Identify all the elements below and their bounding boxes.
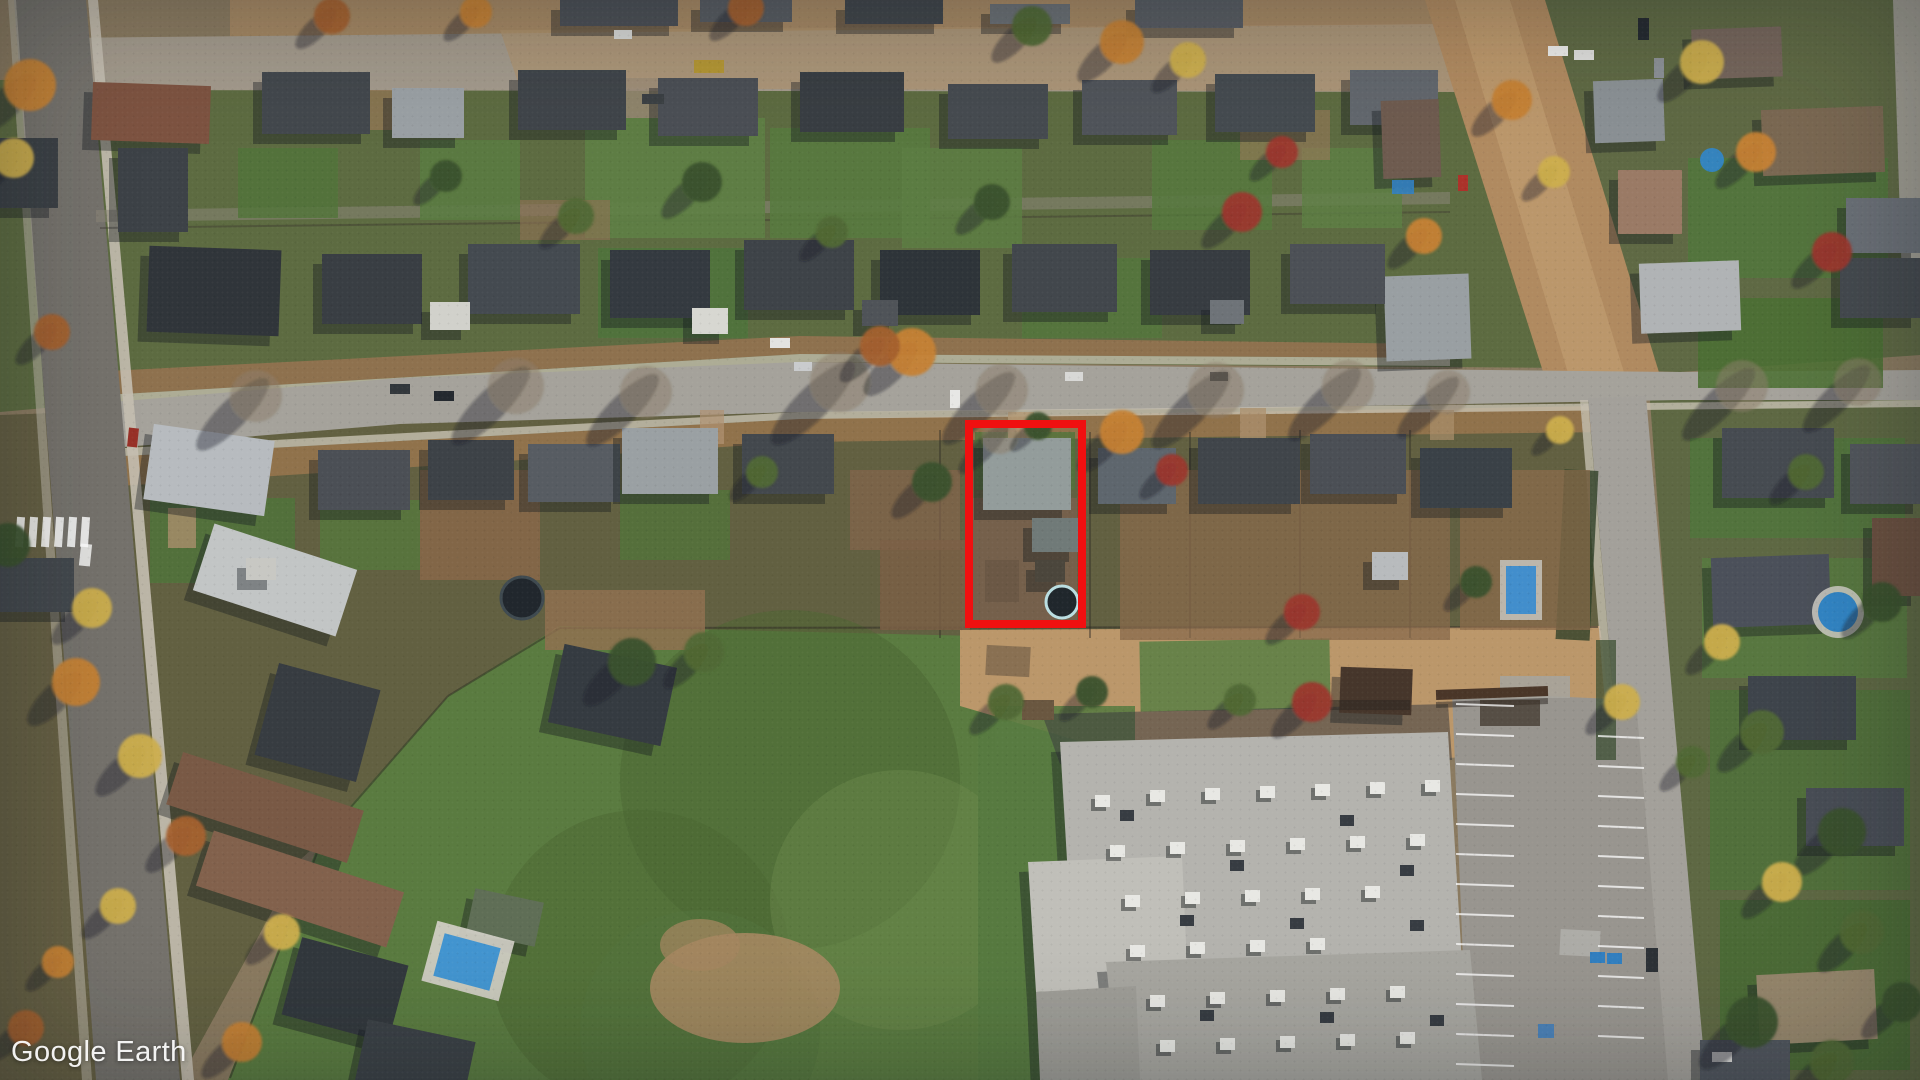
car — [770, 338, 790, 348]
tree — [1284, 594, 1320, 630]
tree — [1736, 132, 1776, 172]
lawn — [238, 148, 338, 218]
house — [1761, 106, 1885, 176]
house — [1135, 0, 1243, 28]
rooftop-unit — [1205, 788, 1220, 800]
rooftop-vent — [1400, 865, 1414, 876]
tree — [264, 914, 300, 950]
rooftop-unit — [1315, 784, 1330, 796]
house — [1850, 444, 1920, 504]
house — [1639, 260, 1741, 333]
tree — [1762, 862, 1802, 902]
rooftop-vent — [1230, 860, 1244, 871]
tree — [974, 184, 1010, 220]
house — [560, 0, 678, 26]
rooftop-vent — [1410, 920, 1424, 931]
tree — [1292, 682, 1332, 722]
tree — [1862, 582, 1902, 622]
house — [1310, 434, 1406, 494]
shed — [1372, 552, 1408, 580]
rooftop-unit — [1210, 992, 1225, 1004]
house — [528, 444, 620, 502]
tree — [100, 888, 136, 924]
house — [1384, 274, 1472, 362]
rooftop-unit — [1130, 945, 1145, 957]
rooftop-unit — [1290, 838, 1305, 850]
house — [468, 244, 580, 314]
house — [1846, 198, 1920, 253]
satellite-canvas — [0, 0, 1920, 1080]
car — [127, 428, 139, 448]
parking-lot — [1452, 692, 1668, 1080]
rooftop-vent — [1430, 1015, 1444, 1026]
tree — [166, 816, 206, 856]
house — [318, 450, 410, 510]
tree — [1538, 156, 1570, 188]
rooftop-vent — [1200, 1010, 1214, 1021]
rooftop-unit — [1150, 790, 1165, 802]
shed — [246, 558, 276, 580]
house — [658, 78, 758, 136]
car — [1548, 46, 1568, 56]
car — [390, 384, 410, 394]
tree — [1834, 358, 1882, 406]
tree — [34, 314, 70, 350]
tree — [1788, 454, 1824, 490]
recycle-bin — [1590, 952, 1605, 963]
rooftop-unit — [1270, 990, 1285, 1002]
house — [744, 240, 854, 310]
shed — [1210, 300, 1244, 324]
rooftop-unit — [1190, 942, 1205, 954]
property-highlight-box — [965, 420, 1086, 628]
tree — [1492, 80, 1532, 120]
tree — [1604, 684, 1640, 720]
rooftop-unit — [1245, 890, 1260, 902]
house — [518, 70, 626, 130]
rooftop-vent — [1340, 815, 1354, 826]
tree — [1188, 362, 1244, 418]
play-structure-shadow — [1330, 700, 1410, 710]
rooftop-vent — [1320, 1012, 1334, 1023]
rooftop-unit — [1400, 1032, 1415, 1044]
house — [1290, 244, 1385, 304]
tree — [860, 326, 900, 366]
tree — [1676, 746, 1708, 778]
pool-tarp — [1392, 180, 1414, 194]
rooftop-unit — [1310, 938, 1325, 950]
tree — [1726, 996, 1778, 1048]
dark-pool — [501, 577, 543, 619]
tree — [4, 59, 56, 111]
car — [614, 30, 632, 39]
recycle-bin — [1607, 953, 1622, 964]
tree — [1100, 20, 1144, 64]
field-worn-patch — [660, 919, 740, 971]
shed — [692, 308, 728, 334]
rooftop-unit — [1095, 795, 1110, 807]
driveway — [1240, 408, 1266, 438]
rooftop-unit — [1330, 988, 1345, 1000]
tree — [430, 160, 462, 192]
car — [1638, 18, 1649, 40]
shed — [862, 300, 898, 326]
rooftop-unit — [1150, 995, 1165, 1007]
tree — [1812, 232, 1852, 272]
car — [1458, 175, 1468, 191]
tree — [620, 366, 672, 418]
house — [91, 82, 211, 144]
tree — [1322, 360, 1374, 412]
tree — [1818, 808, 1866, 856]
rooftop-unit — [1305, 888, 1320, 900]
car — [1654, 58, 1664, 78]
house — [1593, 79, 1665, 143]
tree — [1704, 624, 1740, 660]
tree — [1716, 360, 1768, 412]
house — [845, 0, 943, 24]
tree — [230, 370, 282, 422]
house — [1198, 438, 1300, 504]
rooftop-unit — [1365, 886, 1380, 898]
tree — [746, 456, 778, 488]
rooftop-unit — [1370, 782, 1385, 794]
car — [642, 94, 664, 104]
tree — [608, 638, 656, 686]
rooftop-unit — [1350, 836, 1365, 848]
play-structure — [1480, 700, 1540, 726]
house — [118, 148, 188, 232]
tree — [1266, 136, 1298, 168]
rooftop-unit — [1110, 845, 1125, 857]
play-structure — [1022, 700, 1054, 720]
rooftop-vent — [1180, 915, 1194, 926]
tree — [488, 358, 544, 414]
rooftop-unit — [1220, 1038, 1235, 1050]
car — [1646, 948, 1658, 972]
school-roof-south — [1106, 950, 1482, 1080]
pool-round — [1700, 148, 1724, 172]
house — [622, 428, 718, 494]
house — [322, 254, 422, 324]
house — [428, 440, 514, 500]
tree — [816, 216, 848, 248]
house — [1420, 448, 1512, 508]
tree — [42, 946, 74, 978]
rooftop-unit — [1125, 895, 1140, 907]
rooftop-vent — [1290, 918, 1304, 929]
tree — [1012, 6, 1052, 46]
play-structure — [985, 645, 1031, 677]
tree — [1224, 684, 1256, 716]
rooftop-unit — [1340, 1034, 1355, 1046]
house — [1381, 99, 1442, 179]
car — [794, 362, 812, 371]
house — [1215, 74, 1315, 132]
house — [147, 246, 282, 337]
rooftop-unit — [1260, 786, 1275, 798]
rooftop-unit — [1230, 840, 1245, 852]
house — [262, 72, 370, 134]
shed — [430, 302, 470, 330]
car — [434, 391, 454, 401]
tree — [1546, 416, 1574, 444]
pool-rect — [1506, 566, 1536, 614]
dirt-yard — [880, 540, 970, 630]
tree — [1740, 710, 1784, 754]
rooftop-unit — [1410, 834, 1425, 846]
rooftop-unit — [1160, 1040, 1175, 1052]
rooftop-unit — [1185, 892, 1200, 904]
house — [1618, 170, 1682, 234]
rooftop-unit — [1250, 940, 1265, 952]
tree — [684, 632, 724, 672]
tree — [1222, 192, 1262, 232]
tree — [1170, 42, 1206, 78]
tree — [1076, 676, 1108, 708]
house — [948, 84, 1048, 139]
tree — [976, 364, 1028, 416]
tree — [222, 1022, 262, 1062]
rooftop-vent — [1120, 810, 1134, 821]
tree — [72, 588, 112, 628]
tree — [1426, 370, 1470, 414]
school-roof-sw — [1036, 986, 1140, 1080]
house — [800, 72, 904, 132]
tree — [1406, 218, 1442, 254]
excavator — [694, 60, 724, 73]
rooftop-unit — [1280, 1036, 1295, 1048]
rooftop-unit — [1425, 780, 1440, 792]
tree — [1680, 40, 1724, 84]
tree — [1840, 910, 1884, 954]
house — [1012, 244, 1117, 312]
tree — [912, 462, 952, 502]
tree — [52, 658, 100, 706]
google-earth-watermark: Google Earth — [11, 1036, 187, 1069]
tree — [988, 684, 1024, 720]
tree — [1460, 566, 1492, 598]
tree — [1100, 410, 1144, 454]
handicap-spot — [1538, 1024, 1554, 1038]
car — [950, 390, 960, 408]
rooftop-unit — [1390, 986, 1405, 998]
rooftop-unit — [1170, 842, 1185, 854]
tree — [558, 198, 594, 234]
house — [610, 250, 710, 318]
car — [1065, 372, 1083, 381]
house — [1840, 258, 1920, 318]
house — [392, 88, 464, 138]
car — [1574, 50, 1594, 60]
tree — [118, 734, 162, 778]
tree — [1156, 454, 1188, 486]
tree — [682, 162, 722, 202]
google-earth-view[interactable]: Google Earth — [0, 0, 1920, 1080]
